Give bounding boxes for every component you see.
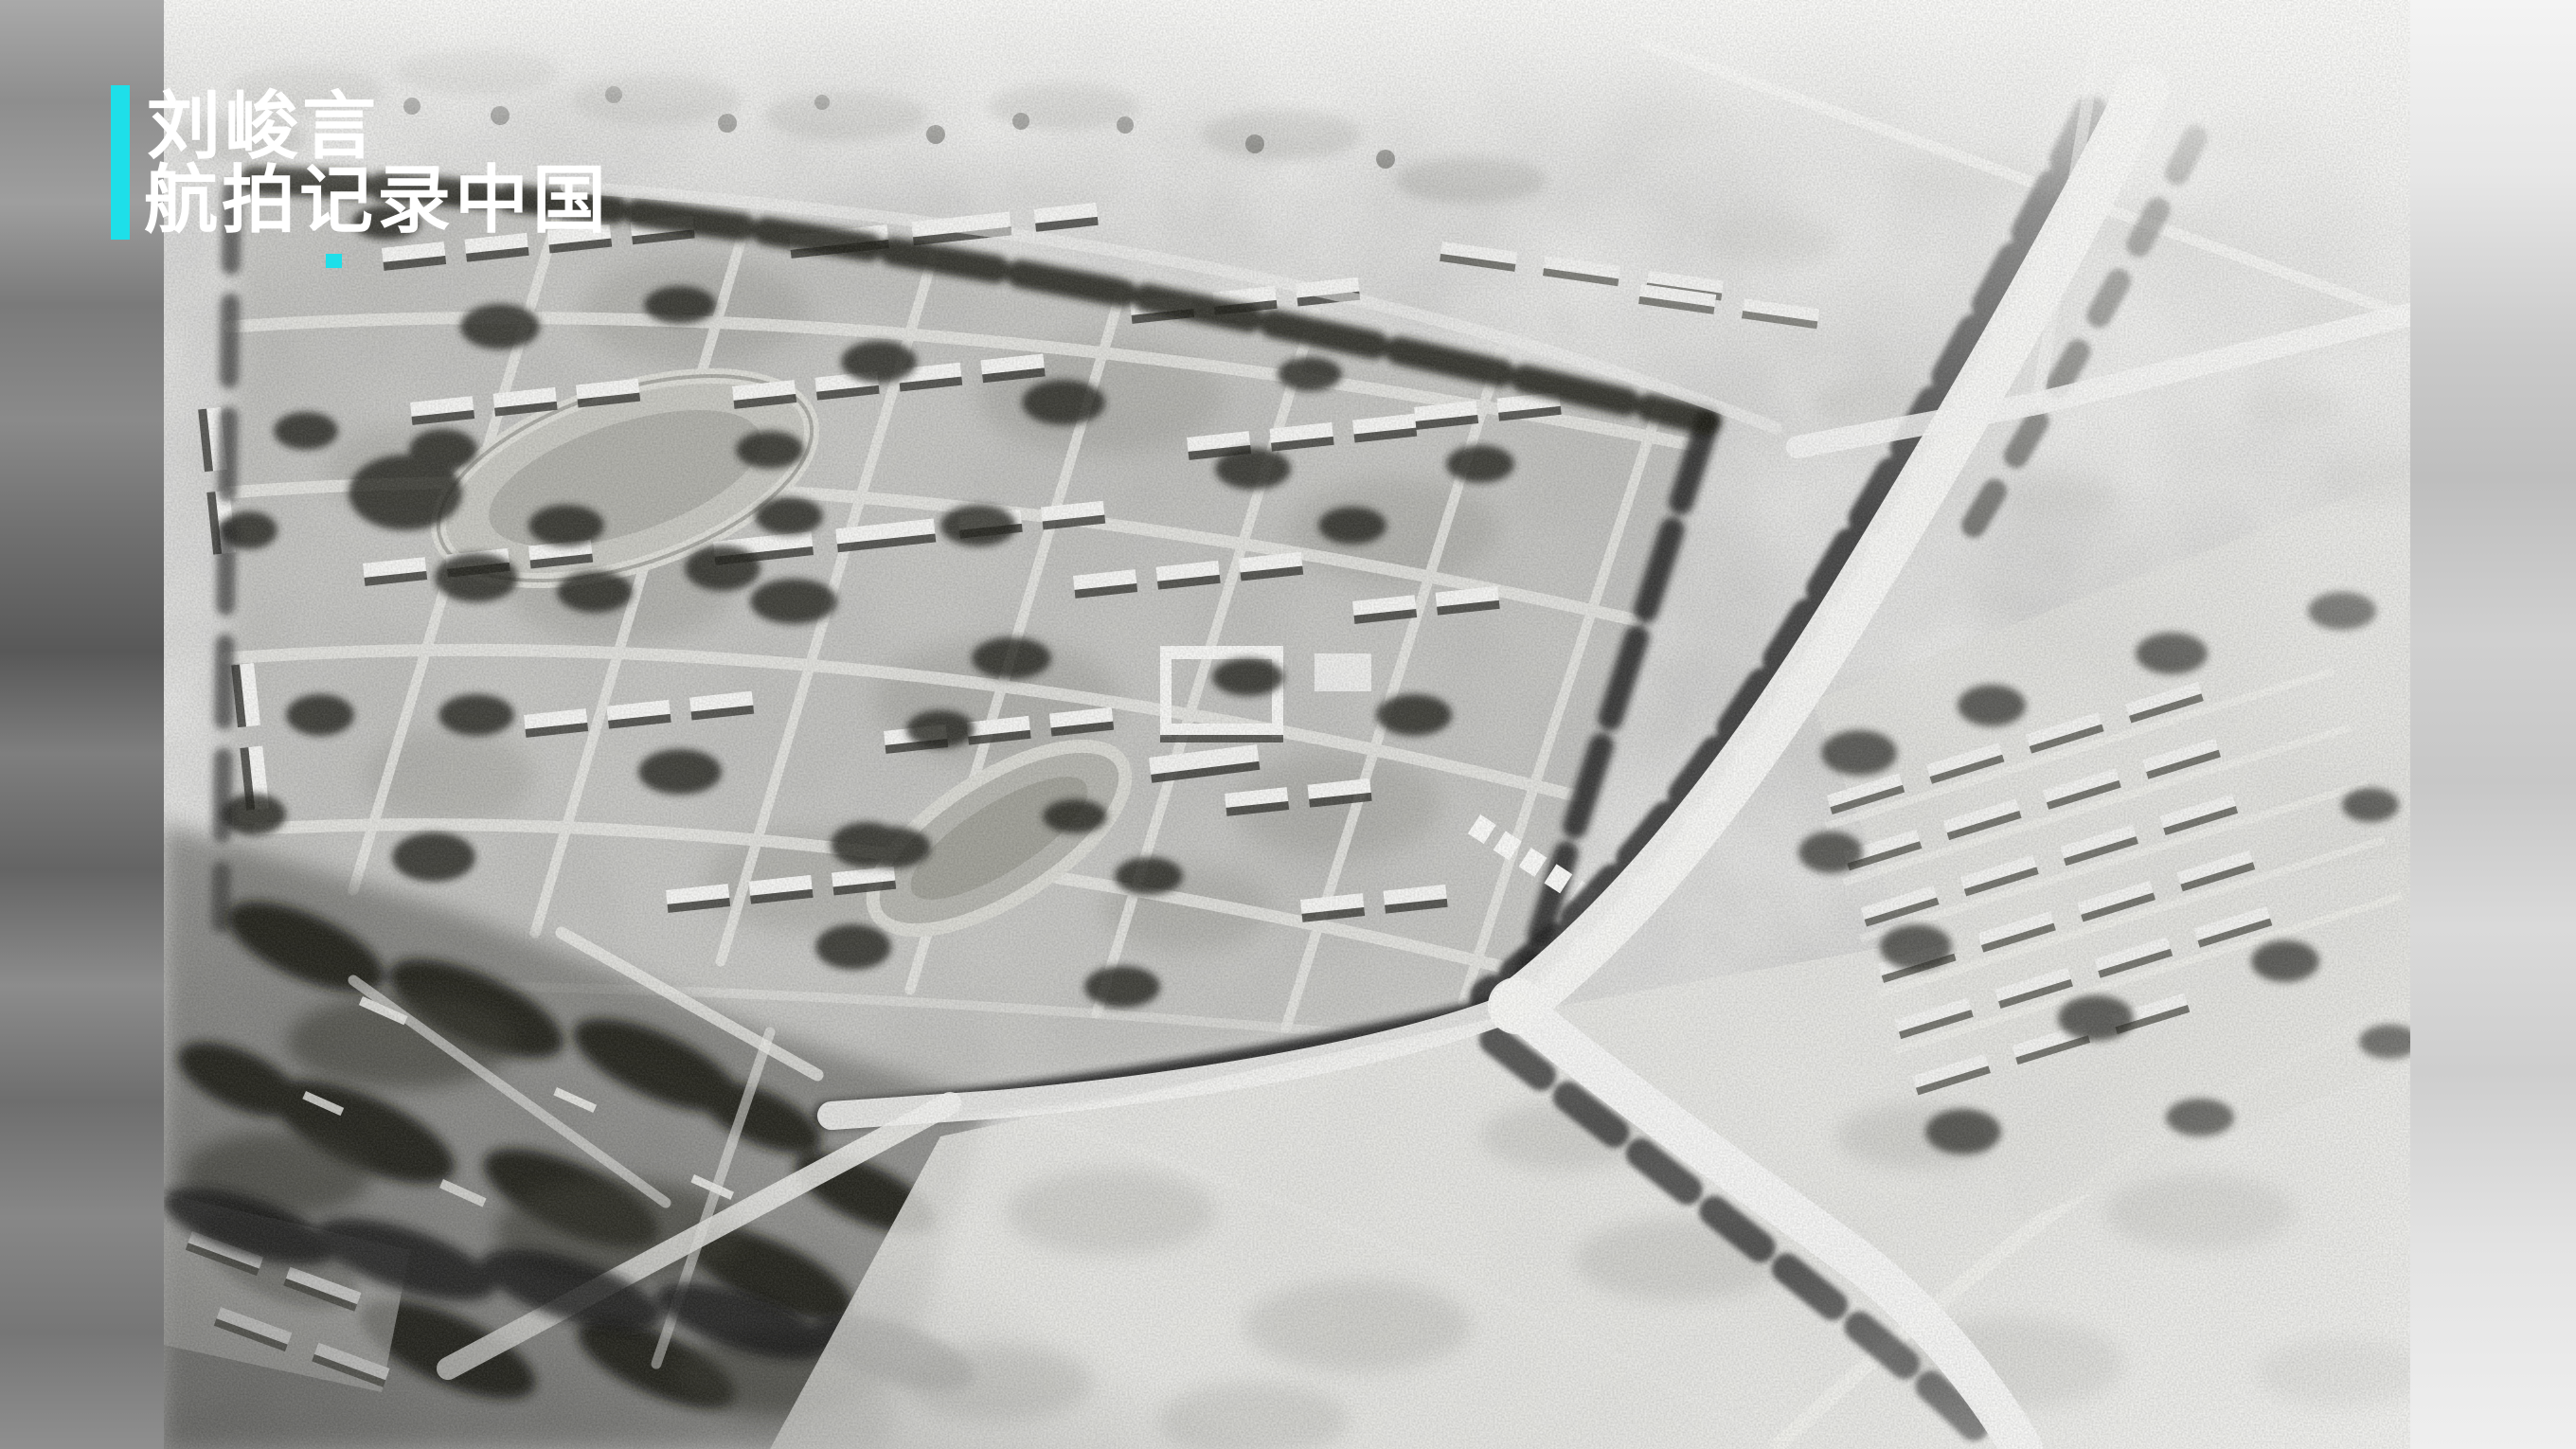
video-frame: 刘峻言 航拍记录中国 [0, 0, 2576, 1449]
watermark-line-1: 刘峻言 [147, 89, 380, 163]
watermark: 刘峻言 航拍记录中国 [0, 0, 852, 398]
watermark-line-2: 航拍记录中国 [144, 163, 610, 237]
watermark-accent-square [326, 254, 342, 268]
blurred-backdrop-right [2410, 0, 2576, 1449]
watermark-accent-bar [111, 85, 130, 240]
